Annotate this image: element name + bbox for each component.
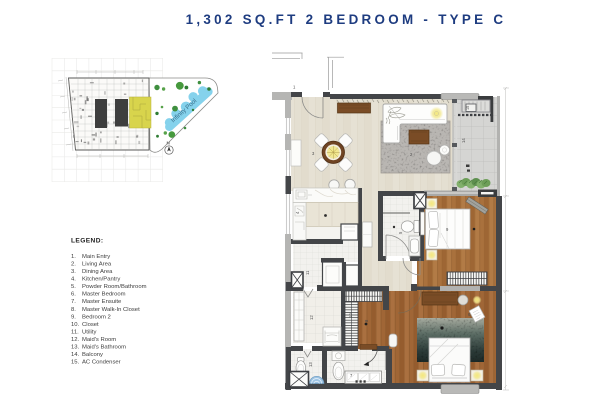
svg-text:13: 13 <box>308 362 313 367</box>
svg-text:11.Utility: 11.Utility <box>71 329 96 335</box>
svg-text:N: N <box>167 141 170 146</box>
svg-text:LEGEND:: LEGEND: <box>71 238 103 245</box>
svg-text:14.Balcony: 14.Balcony <box>71 352 103 358</box>
svg-text:1,302 SQ.FT 2 BEDROOM - TYPE C: 1,302 SQ.FT 2 BEDROOM - TYPE C <box>186 12 507 27</box>
svg-text:15: 15 <box>466 106 470 110</box>
svg-text:5.Powder Room/Bathroom: 5.Powder Room/Bathroom <box>71 284 147 290</box>
svg-text:12.Maid's Room: 12.Maid's Room <box>71 337 116 343</box>
svg-text:11: 11 <box>305 270 310 275</box>
svg-text:10: 10 <box>348 313 353 318</box>
svg-text:10.Closet: 10.Closet <box>71 322 99 328</box>
svg-text:15.AC Condenser: 15.AC Condenser <box>71 360 121 366</box>
svg-text:12: 12 <box>309 315 314 320</box>
svg-text:8.Master Walk-In Closet: 8.Master Walk-In Closet <box>71 307 140 313</box>
svg-text:14: 14 <box>461 138 466 143</box>
